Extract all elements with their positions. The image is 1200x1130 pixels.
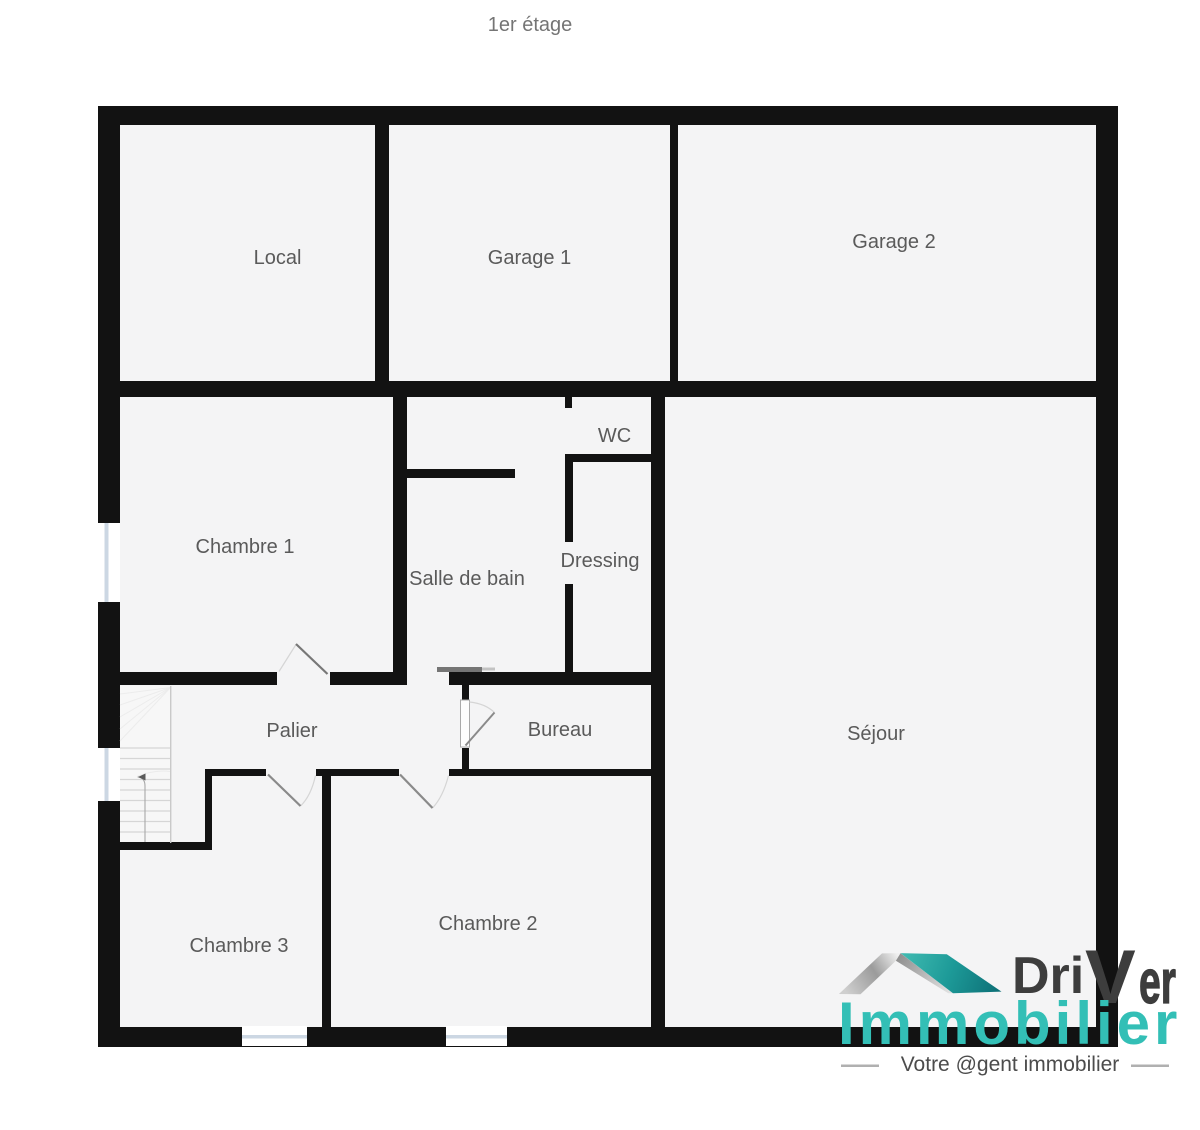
svg-text:Salle de bain: Salle de bain	[409, 568, 525, 590]
svg-text:Chambre 3: Chambre 3	[190, 935, 289, 957]
svg-text:1er étage: 1er étage	[488, 14, 573, 36]
svg-text:WC: WC	[598, 425, 631, 447]
svg-text:Dressing: Dressing	[561, 550, 640, 572]
svg-text:Palier: Palier	[266, 720, 317, 742]
svg-text:Local: Local	[254, 247, 302, 269]
svg-text:Séjour: Séjour	[847, 723, 905, 745]
svg-text:Chambre 2: Chambre 2	[439, 913, 538, 935]
svg-text:Immobilier: Immobilier	[838, 990, 1181, 1057]
svg-text:Bureau: Bureau	[528, 719, 593, 741]
svg-text:Chambre 1: Chambre 1	[196, 536, 295, 558]
svg-text:Garage 2: Garage 2	[852, 231, 935, 253]
svg-text:Votre @gent immobilier: Votre @gent immobilier	[901, 1053, 1120, 1076]
svg-text:Garage 1: Garage 1	[488, 247, 571, 269]
